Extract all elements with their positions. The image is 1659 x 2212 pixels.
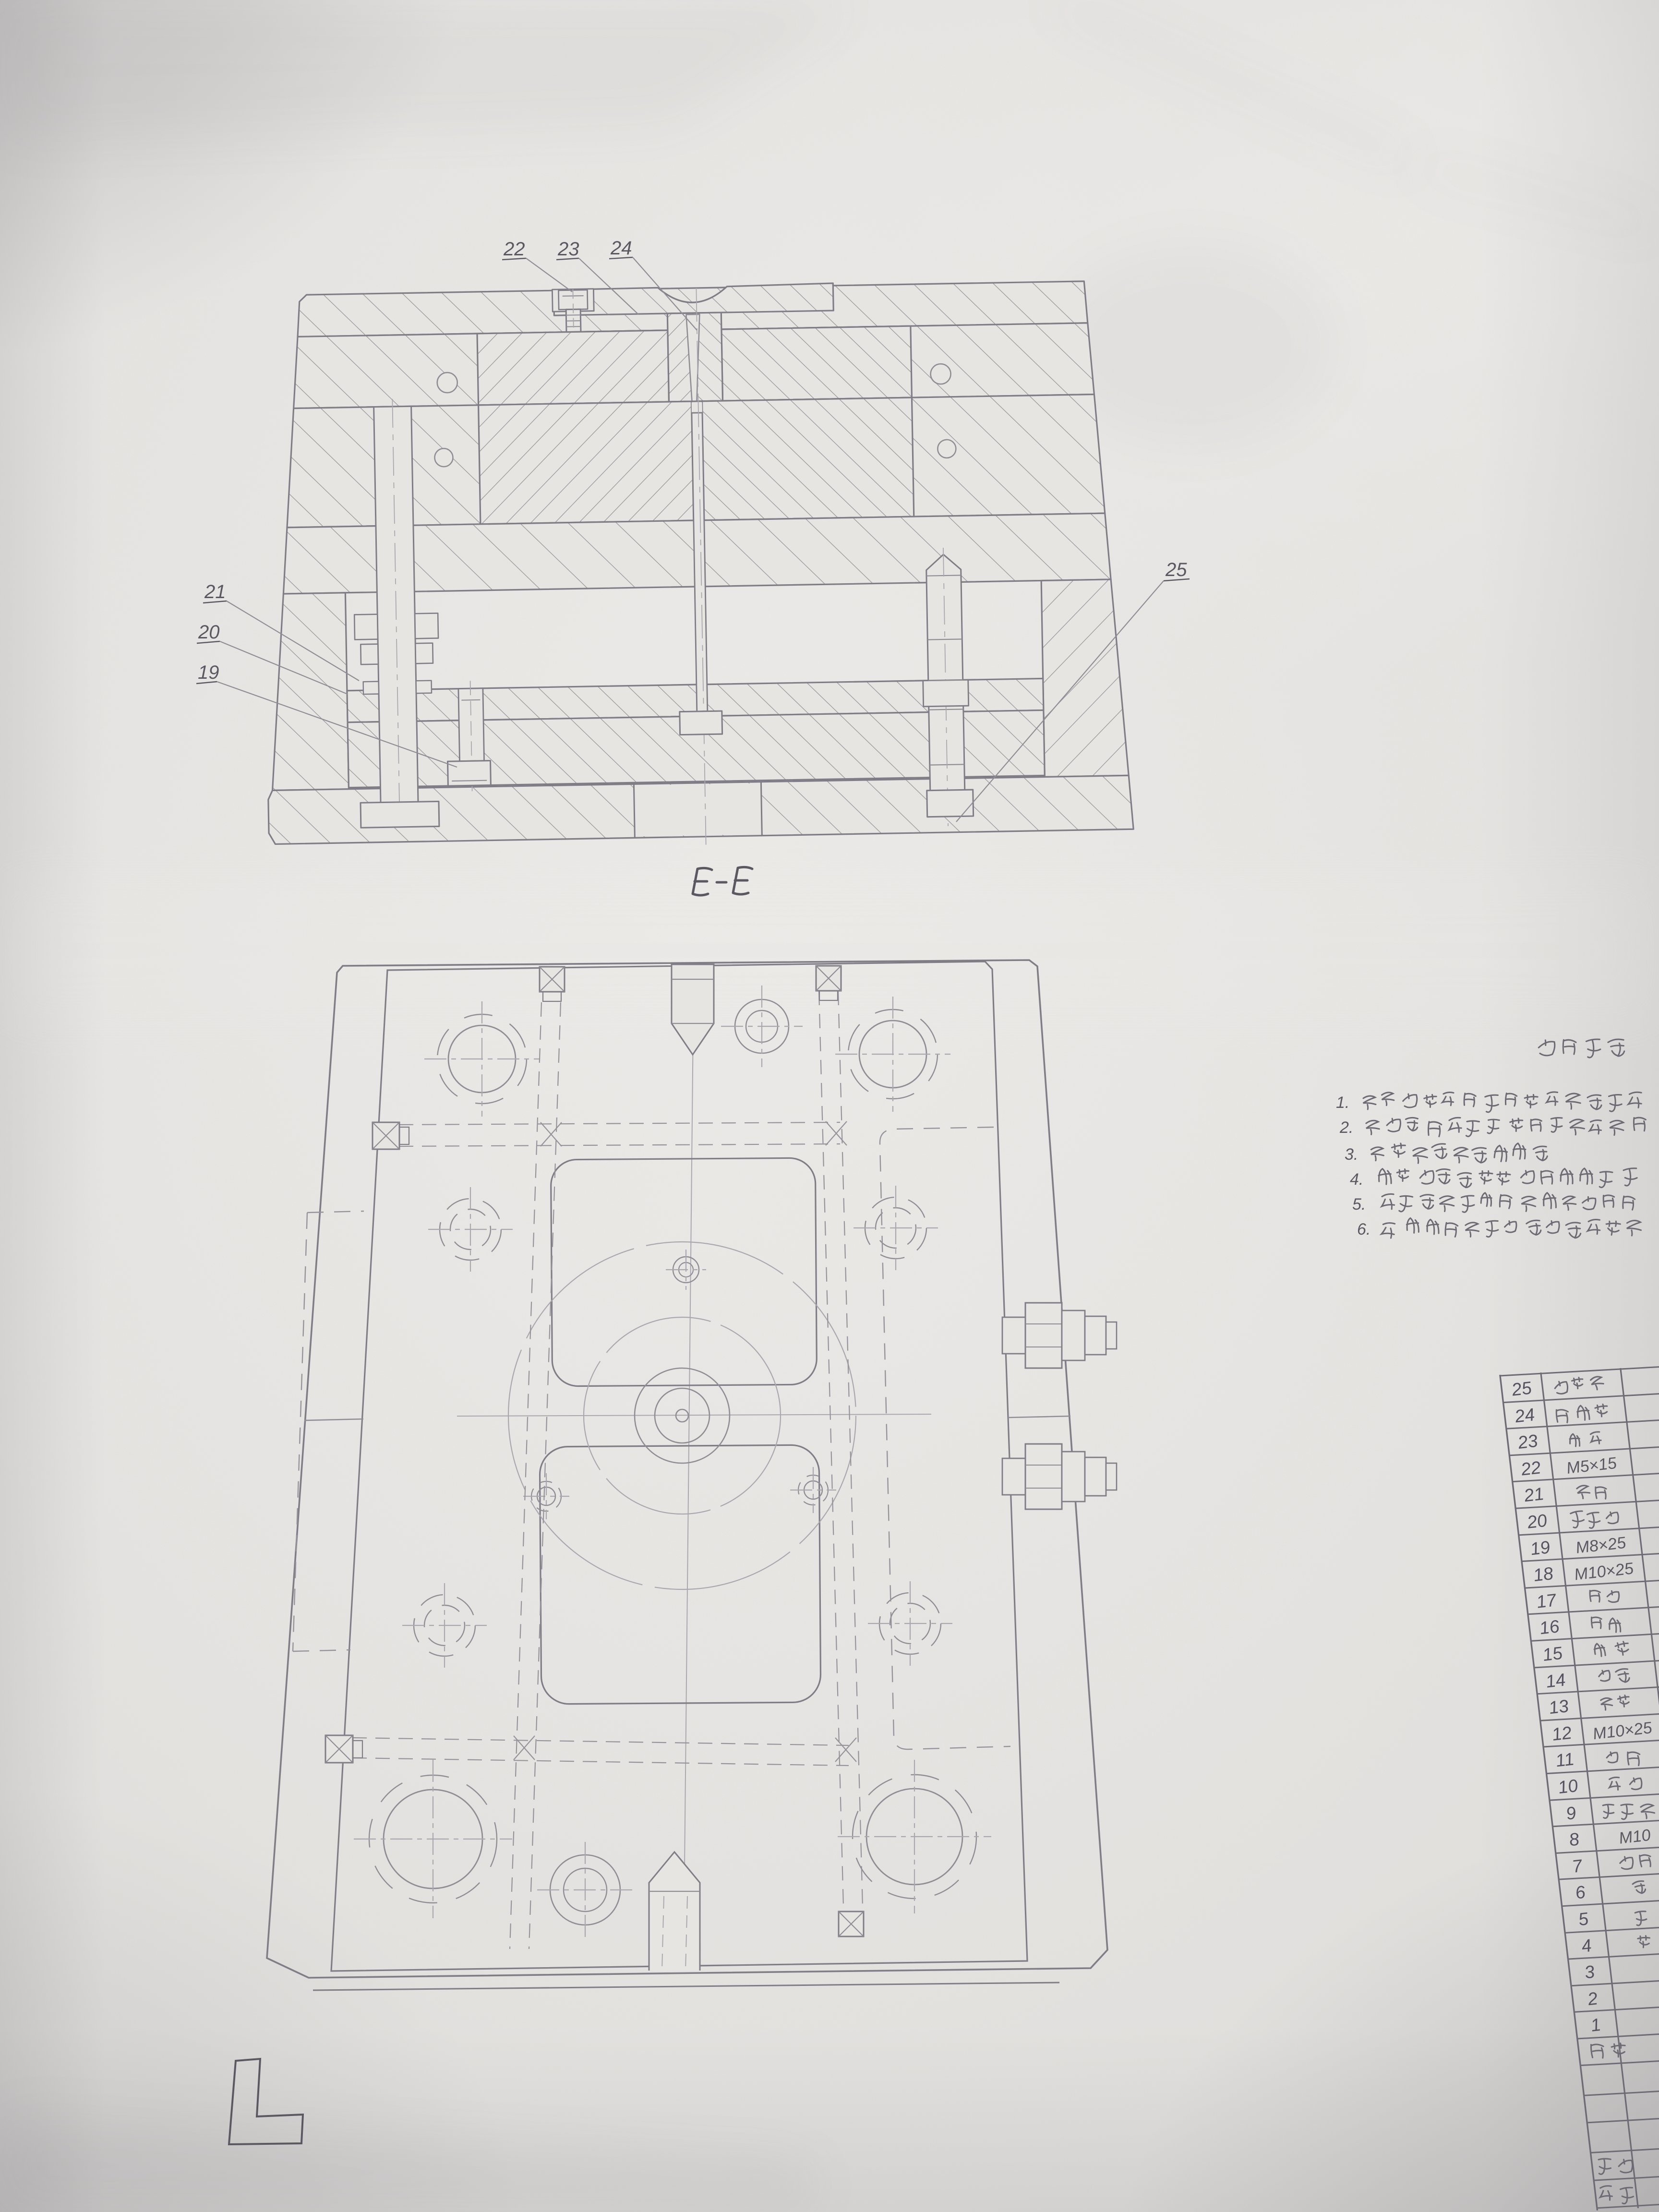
- svg-text:11: 11: [1554, 1749, 1575, 1771]
- svg-text:2.: 2.: [1339, 1118, 1353, 1137]
- svg-text:18: 18: [1532, 1563, 1555, 1585]
- svg-text:5.: 5.: [1352, 1195, 1366, 1214]
- svg-text:20: 20: [1525, 1510, 1549, 1532]
- svg-text:24: 24: [1513, 1404, 1536, 1426]
- svg-text:22: 22: [503, 239, 525, 260]
- svg-text:13: 13: [1547, 1695, 1570, 1718]
- svg-text:25: 25: [1165, 559, 1187, 580]
- svg-text:3.: 3.: [1345, 1145, 1358, 1164]
- svg-text:21: 21: [204, 581, 226, 602]
- svg-text:6.: 6.: [1357, 1220, 1370, 1238]
- svg-text:10: 10: [1556, 1775, 1579, 1797]
- svg-text:23: 23: [1516, 1431, 1539, 1453]
- svg-text:17: 17: [1535, 1590, 1558, 1612]
- svg-text:1.: 1.: [1336, 1094, 1349, 1112]
- svg-text:25: 25: [1510, 1378, 1533, 1400]
- svg-text:12: 12: [1550, 1722, 1573, 1744]
- svg-text:19: 19: [198, 662, 219, 683]
- svg-text:21: 21: [1522, 1483, 1545, 1505]
- svg-text:19: 19: [1528, 1537, 1551, 1559]
- svg-text:15: 15: [1541, 1643, 1564, 1665]
- svg-text:16: 16: [1538, 1616, 1561, 1638]
- svg-text:20: 20: [198, 622, 220, 643]
- svg-text:4.: 4.: [1350, 1170, 1363, 1189]
- svg-text:22: 22: [1519, 1457, 1542, 1479]
- svg-text:24: 24: [610, 238, 632, 259]
- svg-text:23: 23: [557, 239, 579, 260]
- svg-text:14: 14: [1544, 1670, 1567, 1692]
- svg-text:M10: M10: [1617, 1826, 1652, 1848]
